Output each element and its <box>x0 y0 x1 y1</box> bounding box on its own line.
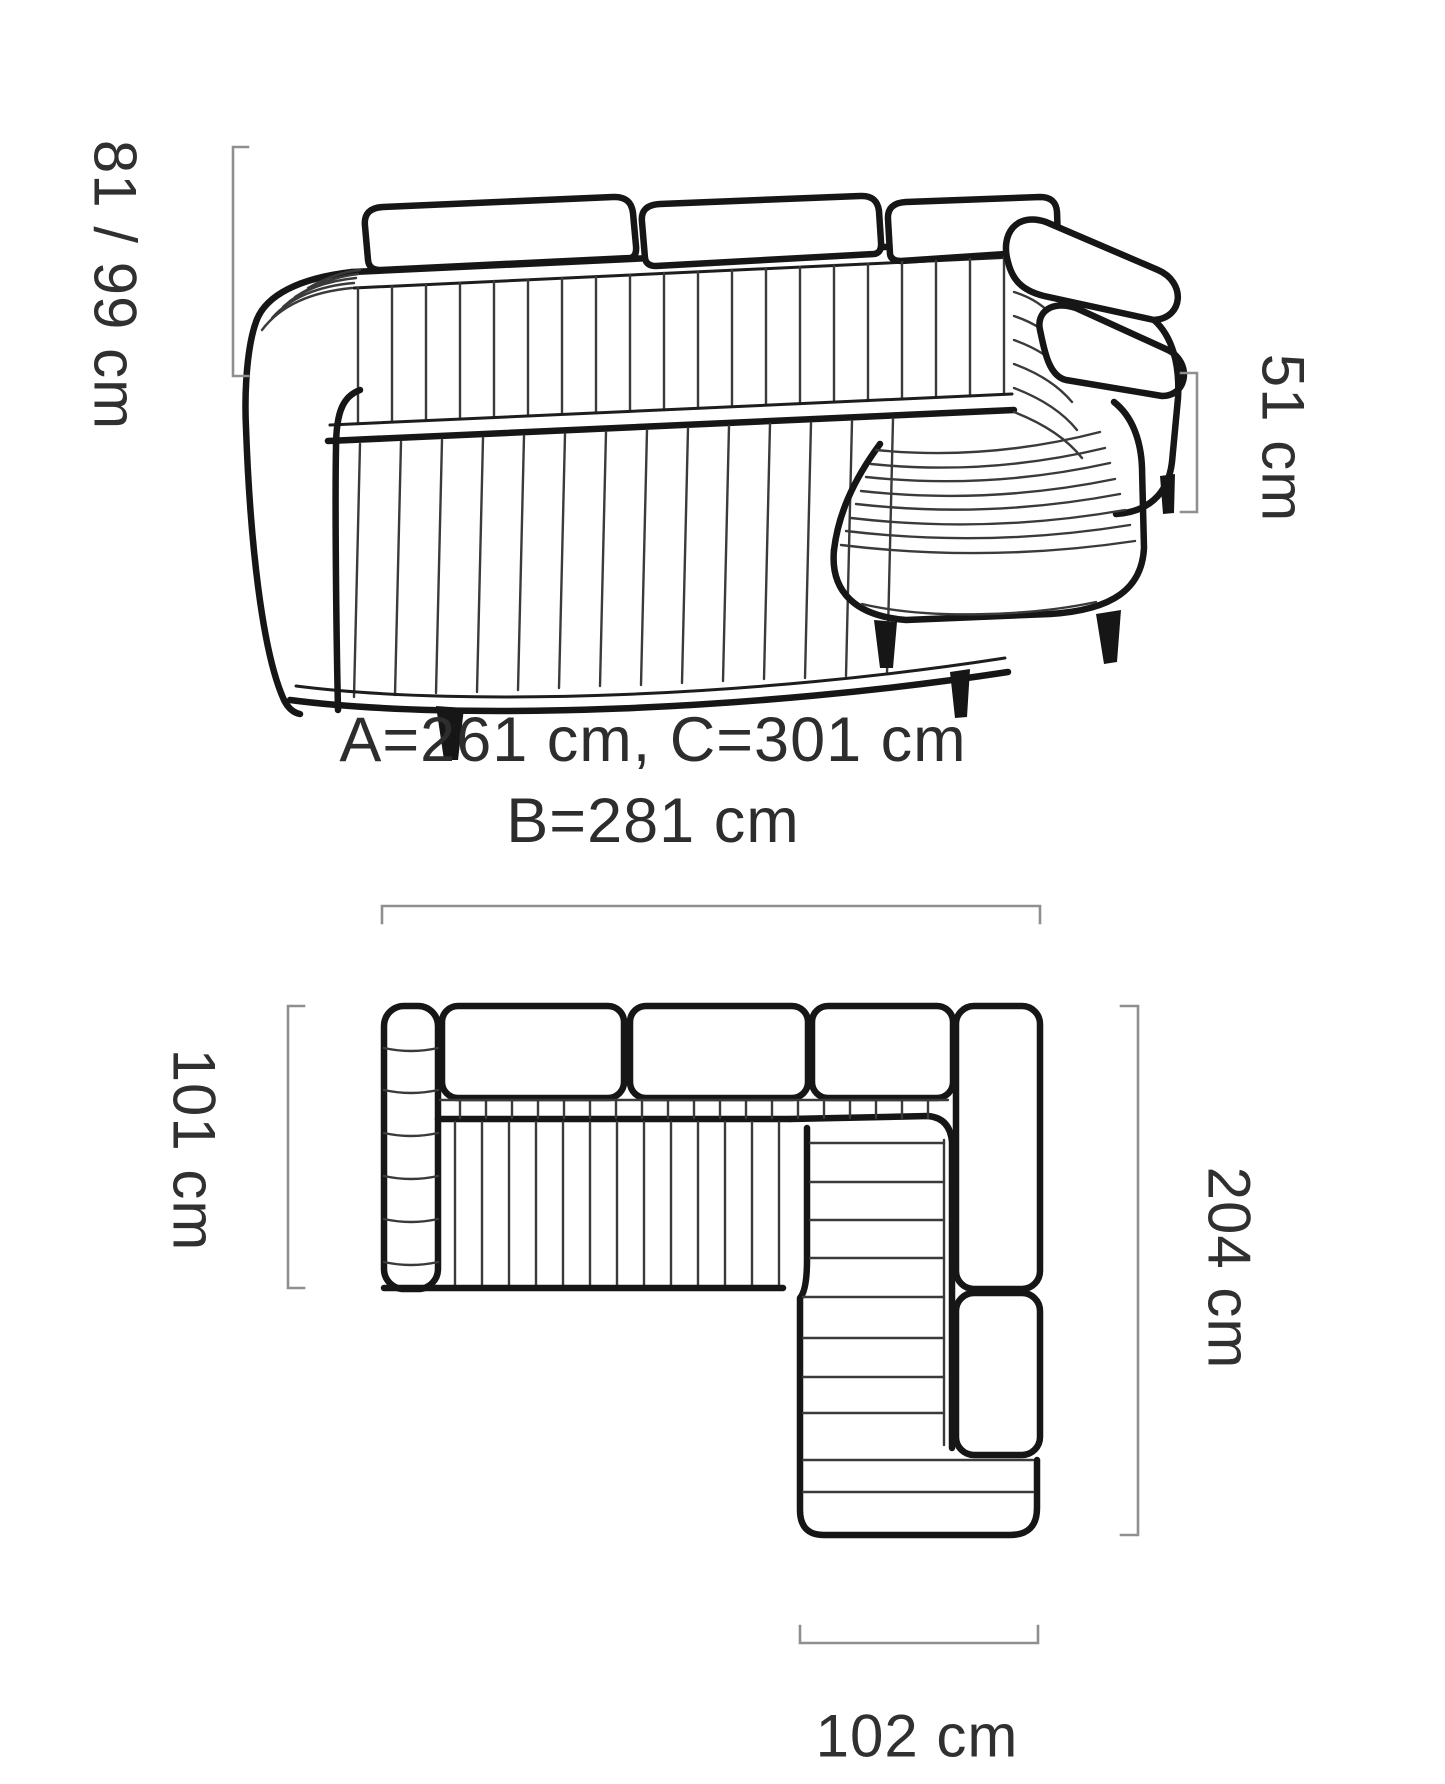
sofa-plan-view-drawing <box>288 906 1138 1643</box>
arm-height-measure-bracket <box>1181 373 1197 512</box>
height-dimension-label: 81 / 99 cm <box>81 140 150 430</box>
total-depth-measure-bracket <box>1121 1006 1138 1535</box>
sofa-dimension-sheet: 81 / 99 cm 51 cm A=261 cm, C=301 cm B=28… <box>0 0 1445 1784</box>
width-measure-bracket <box>382 906 1040 923</box>
seat-channel-stitching <box>354 419 893 697</box>
chaise-width-dimension-label: 102 cm <box>816 1702 1019 1771</box>
sofa-drawings <box>0 0 1445 1784</box>
headrest-cushion <box>642 196 881 266</box>
plan-back-cushion <box>812 1006 953 1098</box>
sofa-leg <box>1160 474 1175 514</box>
plan-back-cushion <box>630 1006 808 1098</box>
chaise-width-measure-bracket <box>800 1626 1038 1643</box>
right-armrest-cushion <box>1006 220 1178 320</box>
arm-height-dimension-label: 51 cm <box>1249 354 1318 522</box>
sofa-leg <box>874 620 897 668</box>
plan-right-armrest-lower <box>956 1293 1040 1455</box>
plan-seat-channels <box>455 1122 779 1285</box>
height-measure-bracket <box>233 147 248 376</box>
chaise-front <box>834 402 1144 620</box>
width-dimensions-note: A=261 cm, C=301 cm B=281 cm <box>339 700 966 861</box>
seat-depth-dimension-label: 101 cm <box>160 1049 229 1252</box>
sofa-side-view-drawing <box>245 196 1183 760</box>
sofa-leg <box>1096 610 1121 664</box>
seat-depth-measure-bracket <box>288 1006 304 1288</box>
plan-back-cushion <box>442 1006 624 1098</box>
total-depth-dimension-label: 204 cm <box>1195 1167 1264 1370</box>
plan-right-armrest-upper <box>956 1006 1040 1289</box>
headrest-cushion <box>365 197 636 270</box>
width-dimensions-line-2: B=281 cm <box>339 781 966 862</box>
width-dimensions-line-1: A=261 cm, C=301 cm <box>339 700 966 781</box>
chaise-channel-stitching <box>841 432 1135 553</box>
